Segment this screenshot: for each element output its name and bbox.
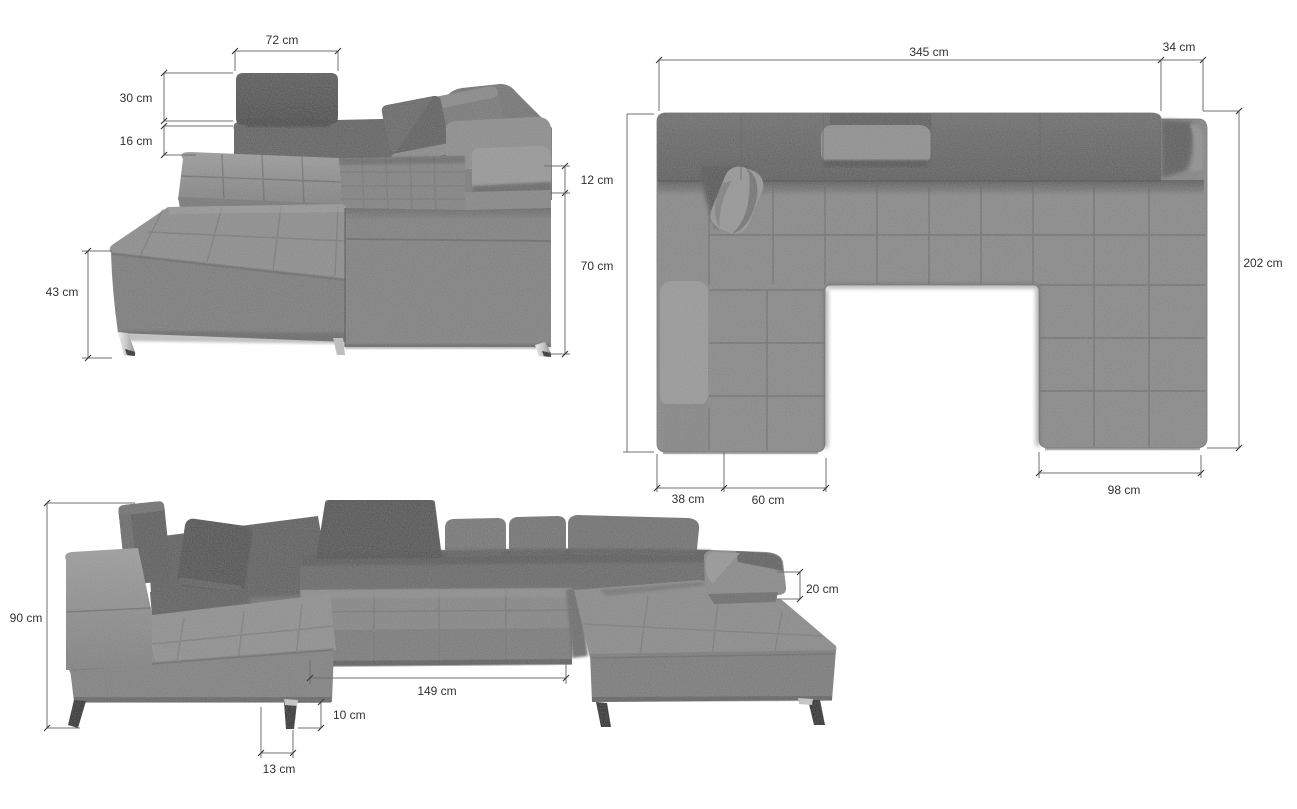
svg-text:72 cm: 72 cm xyxy=(266,33,299,47)
svg-text:345 cm: 345 cm xyxy=(909,45,948,59)
svg-text:16 cm: 16 cm xyxy=(120,134,153,148)
svg-text:10 cm: 10 cm xyxy=(333,708,366,722)
svg-text:12 cm: 12 cm xyxy=(581,173,614,187)
svg-text:70 cm: 70 cm xyxy=(581,259,614,273)
svg-text:20 cm: 20 cm xyxy=(806,582,839,596)
svg-text:60 cm: 60 cm xyxy=(752,493,785,507)
svg-text:38 cm: 38 cm xyxy=(672,492,705,506)
svg-text:13 cm: 13 cm xyxy=(263,762,296,776)
svg-text:43 cm: 43 cm xyxy=(46,285,79,299)
svg-text:34 cm: 34 cm xyxy=(1163,40,1196,54)
svg-text:149 cm: 149 cm xyxy=(417,684,456,698)
svg-text:98 cm: 98 cm xyxy=(1108,483,1141,497)
svg-text:30 cm: 30 cm xyxy=(120,91,153,105)
svg-text:202 cm: 202 cm xyxy=(1243,256,1282,270)
svg-text:90 cm: 90 cm xyxy=(10,611,43,625)
